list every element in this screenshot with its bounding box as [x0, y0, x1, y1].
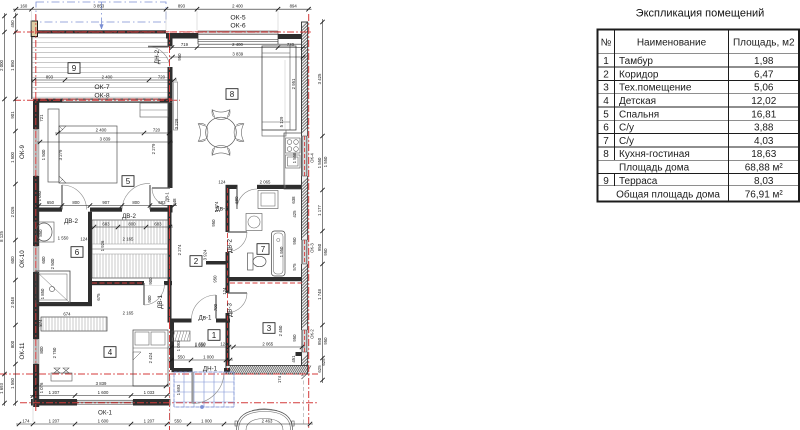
svg-text:1 550: 1 550 [317, 157, 322, 168]
svg-text:1,98: 1,98 [754, 56, 774, 67]
svg-text:2 500: 2 500 [50, 258, 55, 269]
svg-text:№: № [601, 38, 612, 49]
svg-text:2 165: 2 165 [123, 237, 134, 242]
svg-text:683: 683 [102, 221, 110, 226]
svg-text:3: 3 [267, 324, 272, 333]
svg-text:550: 550 [178, 354, 186, 359]
svg-text:800: 800 [132, 200, 140, 205]
svg-text:2 065: 2 065 [260, 180, 271, 185]
svg-text:ДВ-1: ДВ-1 [157, 295, 164, 309]
svg-text:ДВ-1: ДВ-1 [164, 192, 169, 202]
svg-text:ОК-3: ОК-3 [310, 243, 315, 253]
svg-text:600: 600 [10, 256, 15, 264]
svg-text:1 207: 1 207 [144, 418, 155, 423]
svg-text:3 839: 3 839 [100, 136, 111, 141]
svg-text:4: 4 [108, 348, 113, 357]
svg-text:Спальня: Спальня [619, 109, 659, 120]
svg-text:ДВ-2: ДВ-2 [64, 218, 78, 225]
svg-text:950: 950 [292, 237, 297, 245]
svg-text:2 048: 2 048 [10, 297, 15, 308]
svg-text:874: 874 [38, 319, 43, 327]
svg-text:800: 800 [39, 346, 44, 354]
svg-text:124: 124 [80, 237, 88, 242]
svg-text:9: 9 [603, 176, 609, 187]
svg-text:68,88 м²: 68,88 м² [745, 163, 784, 174]
svg-text:1 850: 1 850 [10, 60, 15, 71]
svg-text:2 463: 2 463 [262, 418, 273, 423]
svg-text:1: 1 [603, 56, 609, 67]
svg-text:900: 900 [147, 295, 152, 303]
svg-text:894: 894 [290, 4, 298, 9]
svg-text:18,63: 18,63 [751, 149, 776, 160]
svg-text:700: 700 [213, 303, 218, 311]
svg-text:124: 124 [220, 342, 228, 347]
svg-text:893: 893 [46, 74, 54, 79]
svg-text:1 550: 1 550 [323, 156, 328, 167]
svg-text:ОК-10: ОК-10 [19, 250, 26, 268]
svg-text:3 425: 3 425 [317, 73, 322, 84]
svg-text:2: 2 [603, 69, 609, 80]
svg-text:16,81: 16,81 [751, 109, 776, 120]
svg-text:5,06: 5,06 [754, 83, 774, 94]
svg-text:Тамбур: Тамбур [619, 55, 653, 67]
svg-text:5: 5 [603, 109, 609, 120]
svg-text:9: 9 [72, 64, 77, 73]
svg-text:950: 950 [213, 275, 218, 283]
svg-text:720: 720 [158, 74, 166, 79]
svg-text:С/у: С/у [619, 123, 634, 134]
svg-text:720: 720 [153, 127, 161, 132]
svg-text:ОК-2: ОК-2 [310, 329, 315, 339]
svg-text:900: 900 [148, 277, 153, 285]
svg-text:2: 2 [194, 257, 199, 266]
svg-text:3 279: 3 279 [58, 149, 63, 160]
svg-text:ДН-2: ДН-2 [154, 49, 161, 64]
svg-text:719: 719 [181, 42, 189, 47]
svg-text:Наименование: Наименование [637, 38, 707, 49]
svg-text:ОК-7: ОК-7 [94, 84, 110, 91]
svg-text:600: 600 [41, 256, 46, 264]
svg-text:160: 160 [20, 4, 28, 9]
svg-text:1 950: 1 950 [279, 246, 284, 257]
svg-text:907: 907 [102, 200, 110, 205]
svg-text:2 424: 2 424 [148, 352, 153, 363]
svg-text:Площадь, м2: Площадь, м2 [733, 38, 795, 49]
svg-text:3: 3 [603, 83, 609, 94]
svg-text:2 026: 2 026 [10, 206, 15, 217]
svg-text:893: 893 [178, 4, 186, 9]
svg-text:2 000: 2 000 [0, 60, 4, 71]
svg-text:2 400: 2 400 [232, 42, 243, 47]
svg-text:Тех.помещение: Тех.помещение [619, 83, 692, 94]
svg-text:ОК-1: ОК-1 [98, 410, 112, 417]
svg-text:ОК-4: ОК-4 [310, 153, 315, 163]
svg-text:ОК-6: ОК-6 [230, 23, 246, 30]
svg-text:638: 638 [291, 196, 296, 204]
svg-text:451: 451 [291, 355, 296, 363]
svg-text:1 926: 1 926 [100, 240, 105, 251]
svg-text:550: 550 [174, 418, 182, 423]
svg-text:901: 901 [10, 111, 15, 119]
svg-text:2 400: 2 400 [96, 127, 107, 132]
svg-text:3 924: 3 924 [203, 249, 208, 260]
svg-text:Дв-1: Дв-1 [199, 315, 213, 322]
svg-text:8: 8 [230, 90, 235, 99]
svg-text:ОК-11: ОК-11 [19, 342, 26, 359]
svg-text:12,02: 12,02 [751, 96, 776, 107]
svg-text:950: 950 [292, 334, 297, 342]
svg-text:7: 7 [261, 245, 266, 254]
svg-text:2 750: 2 750 [52, 347, 57, 358]
svg-text:124: 124 [222, 287, 227, 295]
svg-text:1 748: 1 748 [317, 289, 322, 300]
svg-text:6: 6 [75, 248, 80, 257]
svg-text:3 839: 3 839 [232, 51, 243, 56]
svg-text:Экспликация помещений: Экспликация помещений [636, 8, 765, 20]
svg-text:2 450: 2 450 [278, 325, 283, 336]
svg-text:1 000: 1 000 [201, 418, 212, 423]
svg-text:1: 1 [212, 331, 217, 340]
svg-text:1 207: 1 207 [49, 390, 60, 395]
svg-text:1 600: 1 600 [98, 418, 109, 423]
svg-text:1 600: 1 600 [98, 390, 109, 395]
svg-text:Общая площадь дома: Общая площадь дома [616, 189, 720, 201]
svg-text:3 229: 3 229 [174, 118, 179, 129]
svg-text:450: 450 [10, 20, 15, 28]
svg-text:124: 124 [218, 180, 226, 185]
svg-text:2 951: 2 951 [291, 78, 296, 89]
svg-text:1 693: 1 693 [0, 383, 4, 394]
svg-text:2 400: 2 400 [102, 74, 113, 79]
svg-text:Коридор: Коридор [619, 69, 659, 80]
svg-text:8,03: 8,03 [754, 176, 774, 187]
svg-text:3,88: 3,88 [754, 123, 774, 134]
svg-text:680: 680 [234, 196, 239, 204]
svg-text:6: 6 [603, 123, 609, 134]
svg-text:625: 625 [321, 358, 326, 366]
svg-text:1 558: 1 558 [292, 152, 297, 163]
svg-text:950: 950 [317, 337, 322, 345]
svg-text:2 274: 2 274 [177, 244, 182, 255]
svg-text:950: 950 [177, 53, 182, 61]
svg-text:3 839: 3 839 [96, 381, 107, 386]
svg-text:950: 950 [211, 219, 216, 227]
svg-text:Площадь дома: Площадь дома [619, 163, 690, 174]
svg-text:2 065: 2 065 [262, 341, 273, 346]
svg-text:674: 674 [63, 312, 71, 317]
svg-text:2 400: 2 400 [232, 4, 243, 9]
svg-text:8 125: 8 125 [0, 231, 4, 242]
svg-text:ОК-5: ОК-5 [230, 15, 246, 22]
svg-text:1 693: 1 693 [176, 384, 181, 395]
svg-text:1 650: 1 650 [195, 343, 206, 348]
svg-text:1 076: 1 076 [39, 382, 44, 393]
svg-text:1 033: 1 033 [144, 390, 155, 395]
svg-text:721: 721 [39, 114, 44, 122]
svg-text:5 129: 5 129 [279, 116, 284, 127]
svg-text:8: 8 [603, 149, 609, 160]
svg-text:850: 850 [38, 229, 43, 237]
svg-text:948: 948 [172, 198, 177, 206]
svg-text:5: 5 [126, 177, 131, 186]
svg-text:800: 800 [72, 200, 80, 205]
svg-text:950: 950 [317, 243, 322, 251]
svg-text:675: 675 [96, 293, 101, 301]
svg-text:ДВ-2: ДВ-2 [122, 213, 136, 220]
svg-text:ОК-9: ОК-9 [19, 144, 26, 158]
svg-text:7: 7 [603, 136, 609, 147]
svg-text:1 000: 1 000 [203, 354, 214, 359]
svg-text:ДВ-2: ДВ-2 [227, 239, 234, 253]
svg-text:650: 650 [47, 200, 55, 205]
svg-text:720: 720 [287, 42, 295, 47]
svg-text:1 207: 1 207 [49, 418, 60, 423]
svg-text:1 500: 1 500 [10, 152, 15, 163]
svg-text:1 550: 1 550 [10, 378, 15, 389]
svg-text:950: 950 [323, 337, 328, 345]
svg-text:Кухня-гостиная: Кухня-гостиная [619, 149, 690, 160]
svg-text:2 279: 2 279 [151, 143, 156, 154]
svg-text:174: 174 [277, 375, 282, 383]
svg-text:800: 800 [128, 221, 136, 226]
svg-text:ДН-1: ДН-1 [203, 366, 218, 373]
svg-text:2 165: 2 165 [123, 311, 134, 316]
svg-text:Дв-2: Дв-2 [216, 206, 230, 213]
svg-text:1 093: 1 093 [176, 340, 181, 351]
svg-text:Терраса: Терраса [619, 176, 658, 187]
svg-text:950: 950 [323, 248, 328, 256]
svg-text:1 550: 1 550 [58, 236, 69, 241]
svg-text:683: 683 [154, 221, 162, 226]
svg-text:1 052: 1 052 [37, 190, 42, 201]
svg-text:Детская: Детская [619, 96, 656, 107]
svg-text:425: 425 [292, 210, 297, 218]
svg-text:1 500: 1 500 [41, 149, 46, 160]
svg-text:4: 4 [603, 96, 609, 107]
svg-text:С/у: С/у [619, 136, 634, 147]
svg-text:76,91 м²: 76,91 м² [745, 190, 784, 201]
svg-text:575: 575 [292, 263, 297, 271]
svg-text:1 850: 1 850 [40, 288, 45, 299]
svg-text:ОК-8: ОК-8 [94, 93, 110, 100]
svg-text:174: 174 [22, 418, 30, 423]
svg-text:1 177: 1 177 [317, 205, 322, 216]
svg-text:800: 800 [10, 340, 15, 348]
svg-text:6,47: 6,47 [754, 69, 774, 80]
svg-text:3 853: 3 853 [93, 4, 104, 9]
svg-text:ДВ-3: ДВ-3 [227, 303, 234, 317]
svg-text:4,03: 4,03 [754, 136, 774, 147]
